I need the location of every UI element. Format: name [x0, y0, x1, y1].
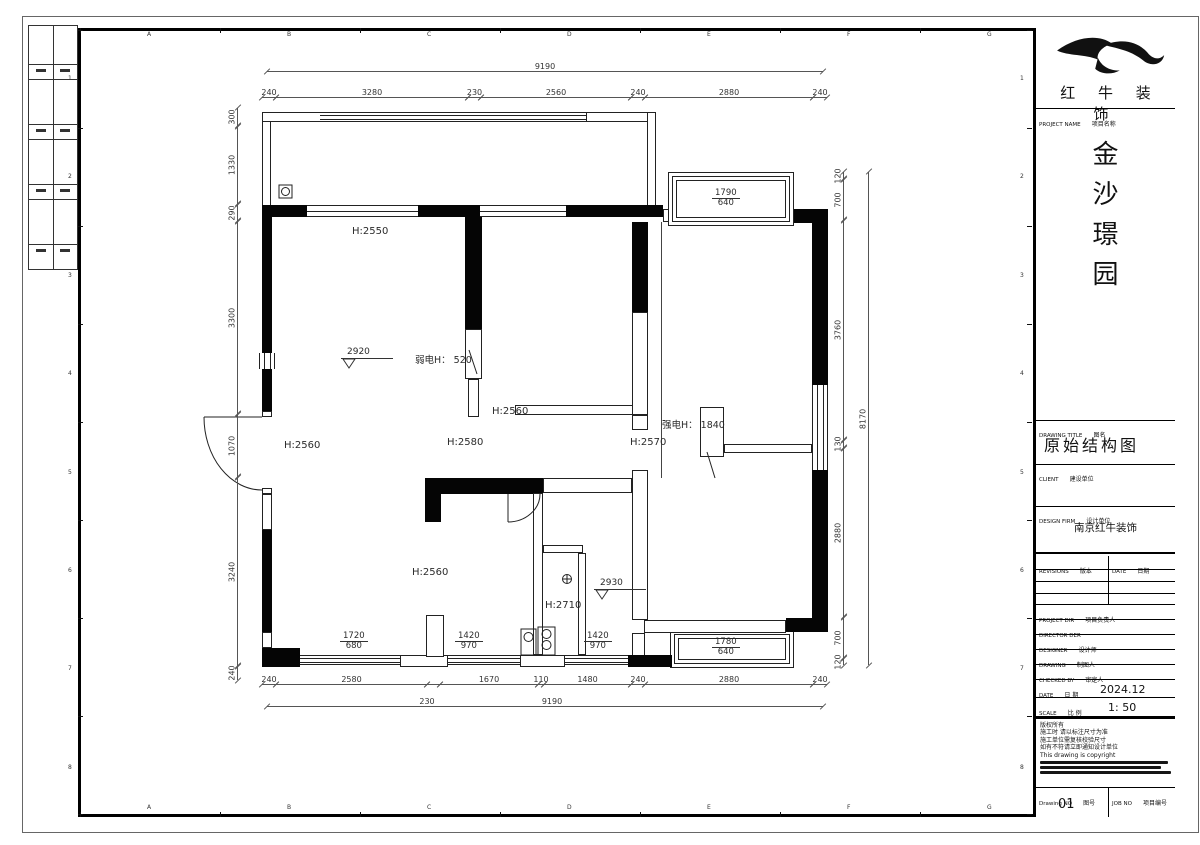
- scale-row: SCALE 比 例 1: 50: [1036, 698, 1175, 717]
- drawing-title: 原始结构图: [1044, 432, 1139, 456]
- opening-height-label: H:2550: [352, 226, 388, 237]
- drain-icon: [282, 188, 290, 196]
- dim: 3280: [276, 97, 468, 98]
- table-divider: [1108, 788, 1109, 817]
- drawing-no-table: Drawing NO 图号 01 JOB NO 项目编号: [1036, 787, 1175, 817]
- divider: [1036, 464, 1175, 465]
- dim: 700: [843, 179, 844, 220]
- level-mark: 2920: [341, 347, 393, 359]
- window-size-label: 1780640: [712, 638, 740, 657]
- note-line: 如有不符请立即通知设计单位: [1040, 744, 1172, 751]
- dim: 2560: [481, 97, 631, 98]
- level-triangle-icon: [594, 589, 610, 601]
- dim: 1330: [237, 126, 238, 204]
- project-name-char: 金: [1092, 134, 1118, 171]
- director-row: DIRECTOR DER: [1036, 620, 1175, 635]
- fixture-circle: [524, 633, 533, 642]
- dim-right-overall: 8170: [868, 172, 869, 665]
- window-size-label: 1420970: [584, 632, 612, 651]
- redacted-line: [1040, 766, 1161, 770]
- date-value: 2024.12: [1100, 683, 1146, 696]
- note-line: This drawing is copyright: [1040, 752, 1172, 759]
- title-block: 红 牛 装 饰 PROJECT NAME 项目名称 金 沙 璟 园 DRAWIN…: [1033, 28, 1175, 817]
- project-dir-row: PROJECT DIR 项目负责人: [1036, 605, 1175, 620]
- redacted-line: [1040, 761, 1168, 765]
- row-line: [1036, 593, 1175, 594]
- niche-diagonal: [707, 452, 715, 478]
- drawing-sheet: A B C D E F G H A B C D E F G H 1 2 3 4 …: [0, 0, 1200, 845]
- date-row: DATE 日 期 2024.12: [1036, 680, 1175, 698]
- kitchen-door-arc: [508, 494, 540, 522]
- dim: 1670: [440, 684, 538, 685]
- divider: [1036, 506, 1175, 507]
- dim-bottom-overall: 230 9190: [267, 706, 823, 707]
- window-size-label: 1420970: [455, 632, 483, 651]
- opening-height-label: H:2560: [492, 406, 528, 417]
- dim: 2880: [843, 448, 844, 617]
- opening-height-label: H:2560: [412, 567, 448, 578]
- dim: 2580: [276, 684, 427, 685]
- fixture-circle: [542, 641, 551, 650]
- row-line: [1036, 581, 1175, 582]
- divider-thick: [1036, 552, 1175, 554]
- dim: 3760: [843, 220, 844, 440]
- dim: 240: [813, 97, 827, 98]
- opening-height-label: H:2710: [545, 600, 581, 611]
- strong-electric-label: 强电H： 1840: [662, 417, 725, 431]
- fixture-circle: [542, 630, 551, 639]
- dim-top-overall: 9190: [267, 71, 823, 72]
- company-logo-dragon-icon: [1048, 32, 1166, 80]
- opening-height-label: H:2580: [447, 437, 483, 448]
- level-triangle-icon: [341, 358, 357, 370]
- dim: 3300: [237, 221, 238, 414]
- revisions-date-header: DATE 日期: [1112, 558, 1149, 577]
- drain-box-icon: [279, 185, 292, 198]
- project-name-char: 沙: [1092, 174, 1118, 211]
- project-name-char: 璟: [1092, 214, 1118, 251]
- opening-height-label: H:2560: [284, 440, 320, 451]
- weak-electric-label: 弱电H： 520: [415, 352, 472, 366]
- job-no-labels: JOB NO 项目编号: [1112, 790, 1167, 809]
- table-divider: [1108, 556, 1109, 604]
- row-line: [1036, 569, 1175, 570]
- window-size-label: 1720680: [340, 632, 368, 651]
- window-size-label: 1790640: [712, 189, 740, 208]
- divider: [1036, 420, 1175, 421]
- level-value: 2930: [600, 578, 623, 588]
- design-firm-name: 南京红牛装饰: [1036, 520, 1175, 535]
- notes: 版权所有 施工时 请以标注尺寸为准 施工单位需复核校验尺寸 如有不符请立即通知设…: [1040, 722, 1172, 776]
- dim: 240: [813, 684, 827, 685]
- revisions-table: REVISIONS 版本 DATE 日期: [1036, 556, 1175, 605]
- client-labels: CLIENT 建设单位: [1039, 466, 1094, 485]
- divider: [1036, 108, 1175, 109]
- dim: 240: [237, 666, 238, 680]
- drawing-by-row: DRAWING 制图人: [1036, 650, 1175, 665]
- plan-symbols: [0, 0, 1200, 845]
- level-value: 2920: [347, 347, 370, 357]
- dim: 1480: [544, 684, 631, 685]
- dim: 700: [843, 617, 844, 658]
- project-name-labels: PROJECT NAME 项目名称: [1039, 111, 1116, 130]
- divider-thick: [1036, 717, 1175, 719]
- redacted-line: [1040, 771, 1171, 775]
- dim: 3240: [237, 477, 238, 666]
- drawing-no-value: 01: [1058, 797, 1075, 812]
- opening-height-label: H:2570: [630, 437, 666, 448]
- designer-row: DESIGNER 设计师: [1036, 635, 1175, 650]
- note-line: 施工时 请以标注尺寸为准: [1040, 729, 1172, 736]
- dim: 120: [843, 658, 844, 665]
- scale-value: 1: 50: [1108, 701, 1136, 714]
- dim: 2880: [645, 684, 813, 685]
- dim: 2880: [645, 97, 813, 98]
- level-mark: 2930: [594, 578, 646, 590]
- checked-by-row: CHECKED BY 审定人: [1036, 665, 1175, 680]
- revisions-header: REVISIONS 版本: [1039, 558, 1092, 577]
- dim: 1070: [237, 414, 238, 477]
- project-name-char: 园: [1092, 254, 1118, 291]
